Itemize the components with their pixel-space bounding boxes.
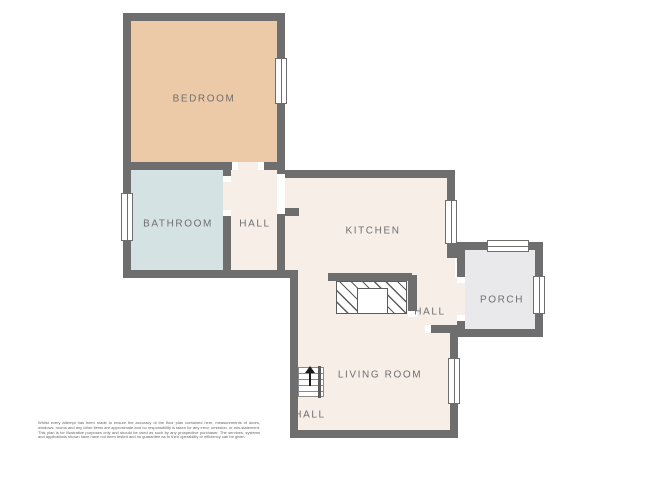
door-jamb bbox=[425, 325, 431, 333]
wall-kitchen-west-lower bbox=[277, 208, 285, 278]
hall-lower-label: HALL bbox=[294, 410, 325, 421]
wall-kitchen-door-stub bbox=[285, 208, 299, 216]
wall-kitchen-north bbox=[277, 170, 455, 178]
door-jamb bbox=[223, 210, 231, 216]
door-jamb bbox=[457, 315, 465, 321]
hall-upper-label: HALL bbox=[239, 219, 270, 230]
kitchen-label: KITCHEN bbox=[345, 226, 400, 237]
bedroom-window bbox=[275, 58, 287, 104]
living-room-window bbox=[448, 358, 460, 404]
wall-bathroom-bottom bbox=[123, 270, 298, 278]
door-jamb bbox=[277, 174, 285, 180]
wall-bedroom-bottom-r bbox=[264, 162, 285, 170]
bathroom-label: BATHROOM bbox=[143, 219, 213, 230]
door-jamb bbox=[258, 162, 264, 170]
wall-bedroom-bottom-l bbox=[123, 162, 232, 170]
wall-bathroom-right-l bbox=[223, 210, 231, 270]
porch-floor bbox=[465, 250, 535, 329]
door-jamb bbox=[457, 277, 465, 283]
door-jamb bbox=[223, 176, 231, 182]
wall-hall-middle-south bbox=[425, 325, 465, 333]
staircase-rail bbox=[318, 366, 321, 398]
bedroom-label: BEDROOM bbox=[173, 94, 236, 105]
disclaimer-text: Whilst every attempt has been made to en… bbox=[38, 421, 260, 440]
door-jamb bbox=[232, 162, 238, 170]
wall-chimney-back bbox=[328, 273, 412, 281]
porch-label: PORCH bbox=[480, 295, 524, 306]
stairs-up-arrow-icon bbox=[309, 372, 311, 386]
living-room-label: LIVING ROOM bbox=[338, 370, 422, 381]
fireplace-hearth bbox=[357, 288, 388, 314]
floor-plan-canvas: BEDROOM BATHROOM HALL KITCHEN PORCH HALL… bbox=[0, 0, 668, 501]
bathroom-window bbox=[121, 193, 133, 241]
wall-porch-bottom bbox=[465, 329, 543, 337]
door-jamb bbox=[277, 208, 285, 214]
wall-living-bottom bbox=[290, 430, 458, 438]
kitchen-window bbox=[445, 200, 457, 244]
porch-top-window bbox=[487, 240, 529, 252]
bedroom-floor bbox=[131, 21, 277, 162]
hall-middle-label: HALL bbox=[414, 307, 445, 318]
wall-bedroom-top bbox=[123, 13, 285, 21]
hall-upper-floor bbox=[223, 162, 277, 270]
porch-right-window bbox=[533, 276, 545, 314]
stairs-up-arrow-head-icon bbox=[305, 366, 315, 373]
